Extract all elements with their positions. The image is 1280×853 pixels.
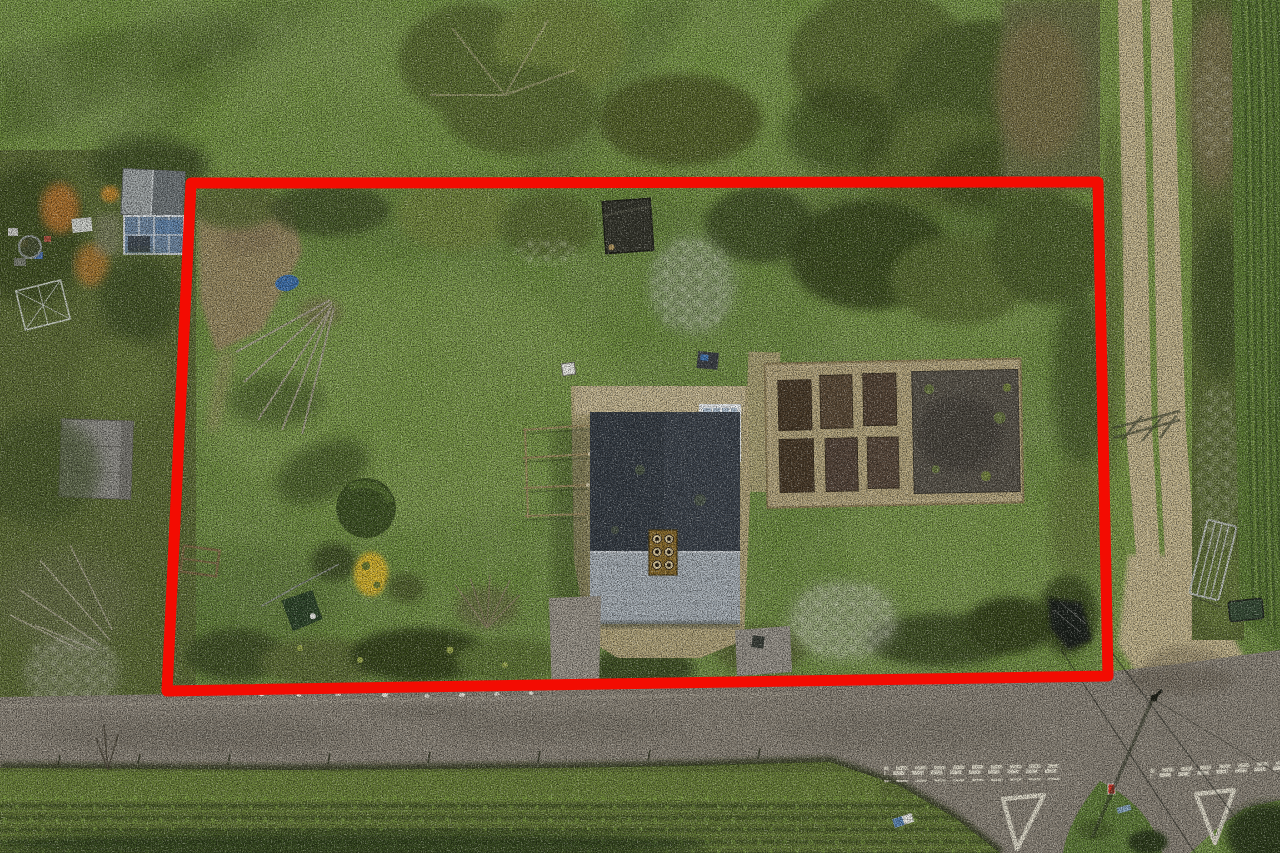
aerial-photo-canvas [0, 0, 1280, 853]
aerial-photo [0, 0, 1280, 853]
film-grain-light [0, 0, 1280, 853]
